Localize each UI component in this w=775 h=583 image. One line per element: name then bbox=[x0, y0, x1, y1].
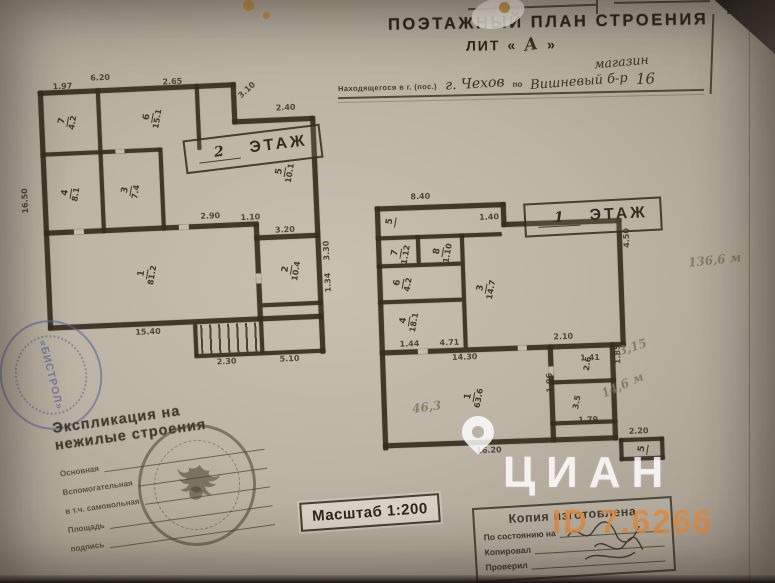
address-overwritten-word: магазин bbox=[593, 52, 649, 72]
room-label: 314.7 bbox=[474, 277, 497, 300]
lit-prefix: ЛИТ bbox=[466, 37, 501, 54]
room-label: 615.1 bbox=[140, 107, 163, 130]
dim-label: 2.30 bbox=[217, 357, 237, 366]
dim-label: 4.71 bbox=[439, 339, 459, 348]
floor1-stamp: 1 ЭТАЖ bbox=[523, 196, 663, 237]
form-line bbox=[614, 0, 710, 4]
copy-stamp-row-label: Проверил bbox=[485, 560, 528, 573]
dim-label: 6.20 bbox=[90, 74, 110, 83]
dim-label: 3.30 bbox=[323, 241, 332, 261]
floor2-word: ЭТАЖ bbox=[249, 132, 309, 157]
lit-open-quote: « bbox=[507, 37, 517, 53]
dim-label: 8.40 bbox=[410, 193, 430, 202]
dim-label: 1.10 bbox=[240, 213, 260, 222]
dim-label: 2.20 bbox=[629, 427, 649, 436]
dim-label: 1.96 bbox=[546, 373, 555, 393]
punch-hole bbox=[243, 0, 254, 11]
lit-line: ЛИТ « А » bbox=[466, 34, 557, 56]
room-label: 64.2 bbox=[391, 275, 413, 292]
dim-label: 5.10 bbox=[280, 355, 300, 364]
dim-label: 16.50 bbox=[21, 188, 30, 214]
room-label: 210.4 bbox=[279, 259, 302, 282]
dim-label: 1.97 bbox=[52, 82, 72, 91]
room-label: 74.2 bbox=[56, 113, 78, 130]
dim-label: 1.79 bbox=[578, 416, 598, 425]
lit-close-quote: » bbox=[547, 36, 557, 52]
document-title: ПОЭТАЖНЫЙ ПЛАН СТРОЕНИЯ bbox=[388, 10, 709, 35]
address-po-label: по bbox=[512, 80, 522, 89]
dim-label: 2.90 bbox=[200, 212, 220, 221]
room-label: 418.1 bbox=[397, 310, 420, 333]
floor2-number: 2 bbox=[197, 142, 241, 164]
cian-id-watermark: ID 7.6266 bbox=[552, 503, 713, 541]
dim-label: 3.20 bbox=[275, 226, 295, 235]
dim-label: 3.10 bbox=[237, 81, 257, 100]
eagle-round-stamp bbox=[130, 416, 264, 553]
dim-label: 2.65 bbox=[162, 78, 182, 87]
room-label: 71.12 bbox=[389, 242, 412, 265]
room-label: 181.2 bbox=[135, 263, 158, 286]
room-label: 3.5 bbox=[571, 394, 582, 410]
address-printed-label: Находящегося в г. (пос.) bbox=[338, 82, 437, 93]
scanned-floorplan-page: ПОЭТАЖНЫЙ ПЛАН СТРОЕНИЯ ЛИТ « А » магази… bbox=[0, 0, 775, 583]
dim-label: 1.40 bbox=[479, 213, 499, 222]
room-label: 48.1 bbox=[59, 185, 81, 202]
address-street-handwritten: Вишневый б-р bbox=[530, 71, 629, 93]
punch-hole bbox=[499, 2, 510, 13]
room-label: 37.4 bbox=[119, 182, 141, 199]
paper-crease bbox=[749, 0, 750, 583]
punch-hole bbox=[263, 12, 270, 19]
room-label: 5 bbox=[384, 216, 397, 228]
address-line: Находящегося в г. (пос.) г. Чехов по Виш… bbox=[338, 67, 768, 96]
dim-label: 1.34 bbox=[324, 272, 333, 292]
address-city-handwritten: г. Чехов bbox=[445, 74, 505, 94]
double-eagle-emblem bbox=[167, 455, 228, 516]
blank-line bbox=[532, 560, 666, 569]
dim-label: 14.30 bbox=[452, 353, 478, 362]
page-bottom-edge bbox=[0, 575, 775, 583]
lit-value-handwritten: А bbox=[523, 34, 542, 56]
address-house-number: 16 bbox=[636, 70, 656, 88]
floor1-word: ЭТАЖ bbox=[589, 204, 648, 225]
explication-row-label: подпись bbox=[70, 540, 105, 554]
scale-stamp: Масштаб 1:200 bbox=[299, 493, 441, 532]
room-label: 81.10 bbox=[431, 241, 454, 264]
dim-label: 1.85 bbox=[614, 344, 623, 364]
floor1-number: 1 bbox=[538, 209, 581, 228]
room-label: 510.1 bbox=[273, 161, 296, 184]
dim-label: 15.40 bbox=[135, 328, 161, 337]
room-label: 2.6 bbox=[582, 356, 593, 372]
dim-label: 2.10 bbox=[553, 333, 573, 342]
dim-label: 1.44 bbox=[399, 340, 419, 349]
dim-label: 2.40 bbox=[276, 104, 296, 113]
cian-watermark: ЦИАН bbox=[503, 448, 674, 498]
room-label: 163.6 bbox=[462, 386, 485, 409]
